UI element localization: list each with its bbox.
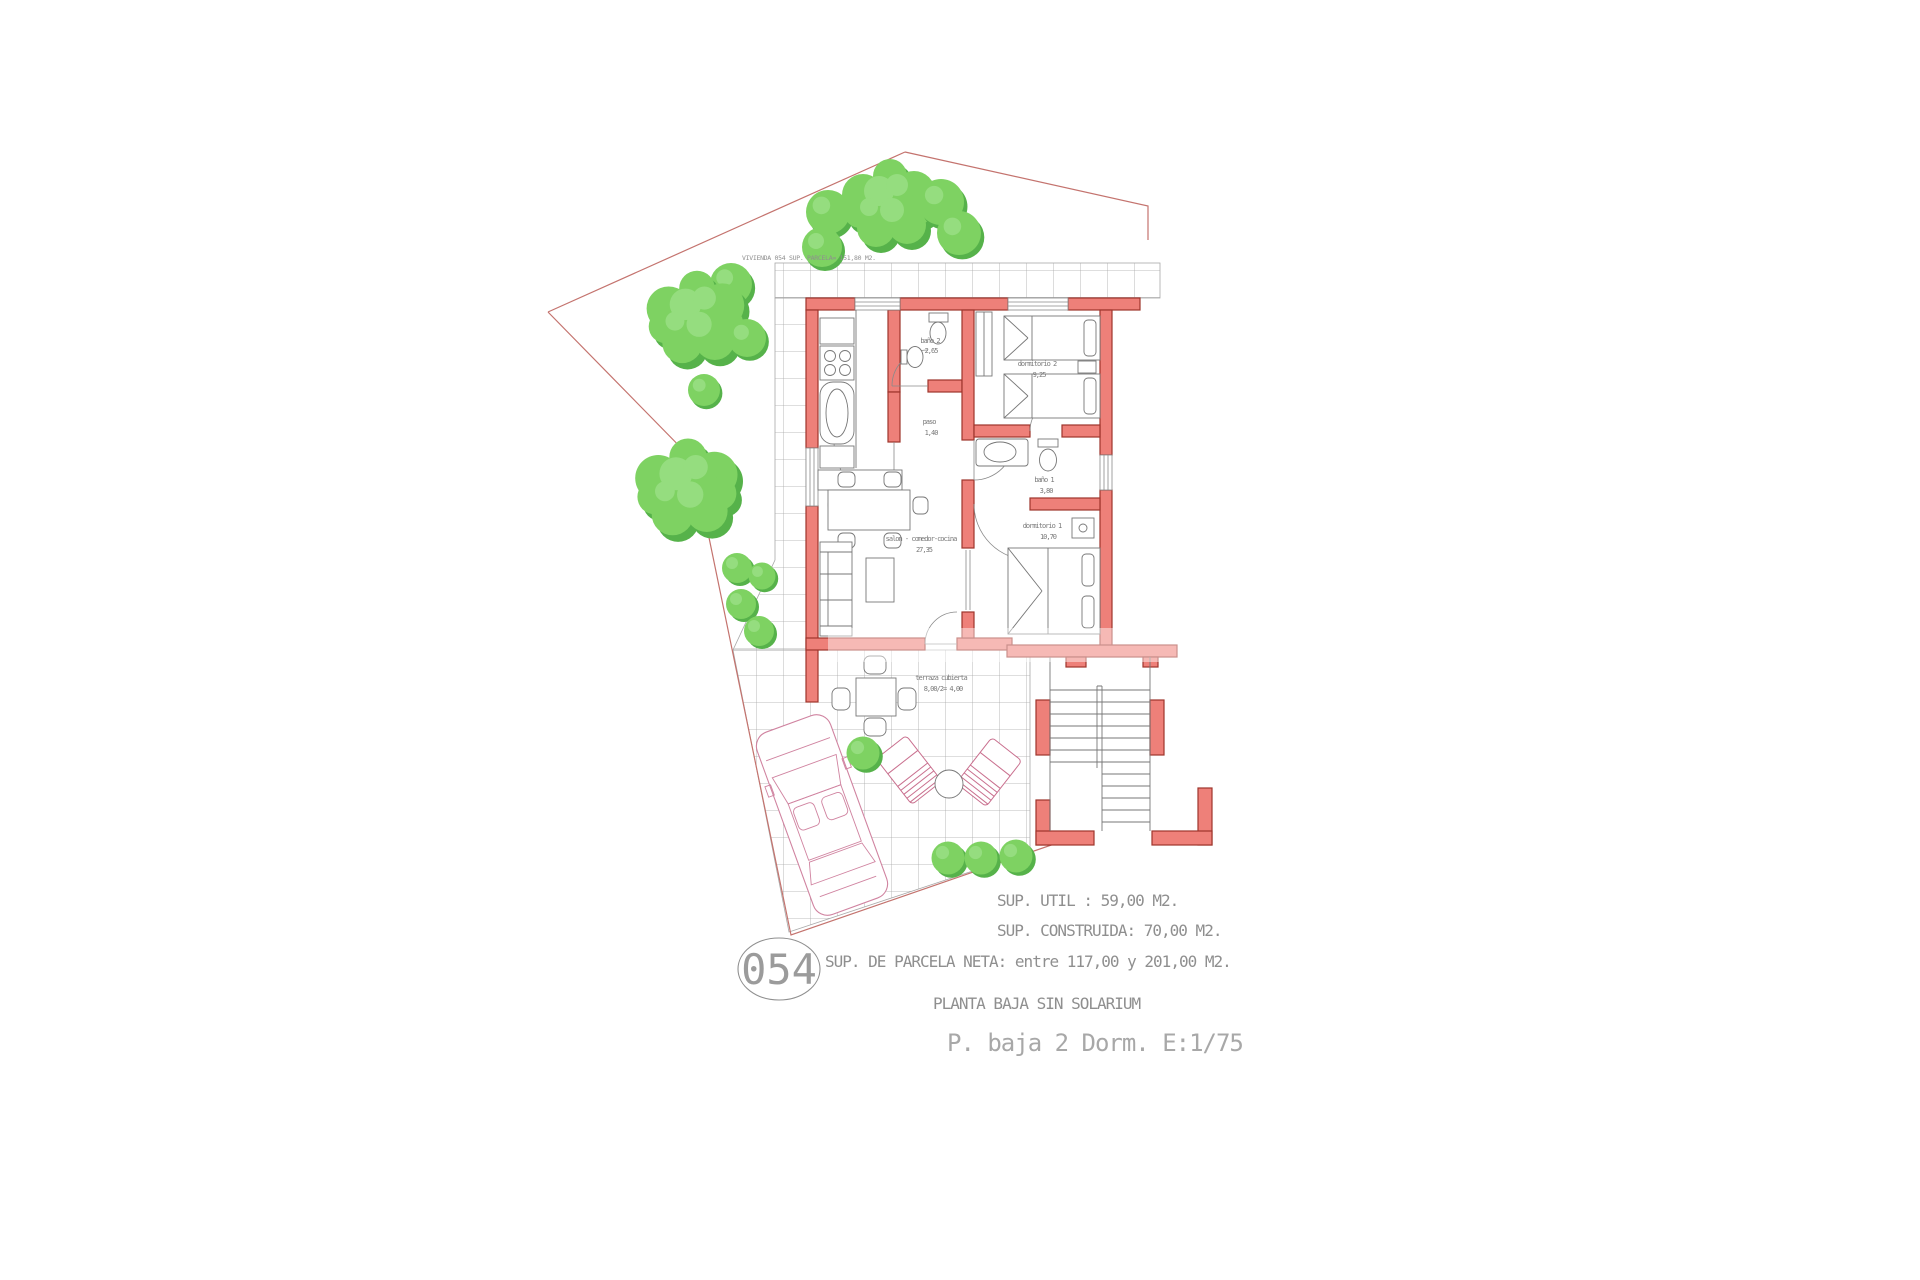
- room-area-terraza: 8,00/2= 4,00: [924, 685, 963, 693]
- dining-chair: [913, 497, 928, 514]
- stair-steps: [1050, 657, 1150, 831]
- sup-util-label: SUP. UTIL : 59,00 M2.: [997, 891, 1178, 910]
- dining-chair: [838, 472, 855, 487]
- room-label-bano1: baño 1: [1034, 476, 1054, 484]
- toilet-tank: [1038, 439, 1058, 447]
- pillow: [1082, 596, 1094, 628]
- room-area-paso: 1,40: [925, 429, 939, 437]
- floor-plan-drawing: VIVIENDA 054 SUP. PARCELA= 151,80 M2. ba…: [0, 0, 1920, 1280]
- dining-chair: [884, 472, 901, 487]
- room-area-bano1: 3,80: [1040, 487, 1054, 495]
- floor-label: PLANTA BAJA SIN SOLARIUM: [933, 994, 1141, 1013]
- room-label-paso: paso: [923, 418, 937, 426]
- stairwell: [1007, 645, 1212, 845]
- room-area-salon: 27,35: [916, 546, 933, 554]
- living-room-furniture: [820, 472, 928, 636]
- room-label-salon: salon - comedor-cocina: [886, 535, 958, 543]
- bathroom1-window: [1100, 455, 1112, 490]
- floor-plan-sheet: VIVIENDA 054 SUP. PARCELA= 151,80 M2. ba…: [0, 0, 1920, 1280]
- living-room-window: [806, 448, 818, 506]
- unit-number: 054: [741, 945, 817, 994]
- room-label-dormitorio1: dormitorio 1: [1023, 522, 1062, 530]
- nightstand: [1078, 361, 1096, 373]
- round-table: [935, 770, 963, 798]
- sup-construida-label: SUP. CONSTRUIDA: 70,00 M2.: [997, 921, 1221, 940]
- room-area-dormitorio1: 10,70: [1040, 533, 1057, 541]
- wash-basin: [984, 442, 1016, 462]
- terrace-chair: [832, 688, 850, 710]
- kitchen-window: [855, 298, 900, 310]
- room-label-dormitorio2: dormitorio 2: [1018, 360, 1057, 368]
- watermark-overlay: [828, 628, 1178, 662]
- kitchen-cabinet: [820, 318, 854, 344]
- toilet-tank: [929, 313, 948, 322]
- room-label-terraza: terraza cubierta: [915, 674, 967, 682]
- pillow: [1084, 378, 1096, 414]
- large-tree: [635, 439, 743, 542]
- toilet-bowl: [1040, 449, 1057, 471]
- bidet-tank: [901, 350, 907, 364]
- coffee-table: [866, 558, 894, 602]
- room-label-bano2: baño 2: [920, 337, 940, 345]
- drawing-title: P. baja 2 Dorm. E:1/75: [947, 1029, 1243, 1057]
- pillow: [1082, 554, 1094, 586]
- dining-table: [828, 490, 910, 530]
- kitchen-lower-cabinet: [820, 446, 854, 468]
- parcel-area-label: VIVIENDA 054 SUP. PARCELA= 151,80 M2.: [742, 254, 876, 262]
- sup-parcela-label: SUP. DE PARCELA NETA: entre 117,00 y 201…: [825, 952, 1231, 971]
- room-area-dormitorio2: 9,25: [1033, 371, 1047, 379]
- terrace-chair: [898, 688, 916, 710]
- bidet-bowl: [907, 347, 923, 368]
- room-area-bano2: 2,65: [925, 347, 939, 355]
- bathroom1-fixtures: [976, 439, 1058, 471]
- terrace-table: [856, 678, 896, 716]
- bedroom2-window: [1008, 298, 1068, 310]
- sofa: [820, 542, 852, 636]
- terrace-chair: [864, 718, 886, 736]
- pillow: [1084, 320, 1096, 356]
- cooktop: [820, 346, 854, 380]
